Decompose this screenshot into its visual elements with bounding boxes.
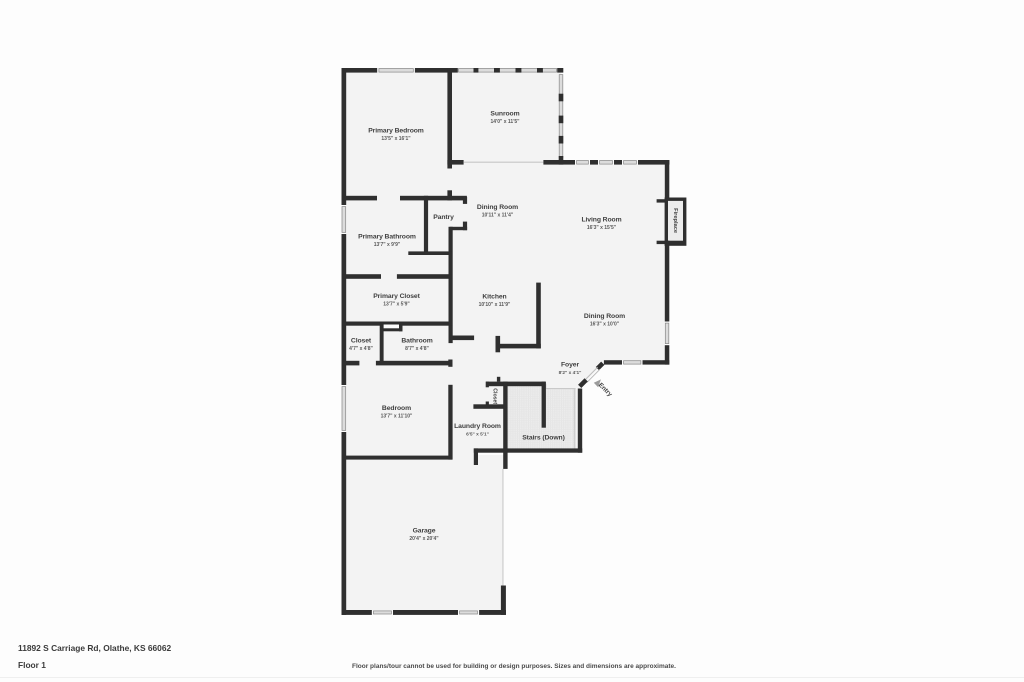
svg-text:Foyer: Foyer [561, 361, 579, 368]
svg-text:Dining Room: Dining Room [584, 313, 625, 320]
svg-text:10'11" x 11'4": 10'11" x 11'4" [482, 213, 514, 219]
svg-text:Bathroom: Bathroom [401, 337, 432, 344]
svg-text:6'5" x 5'1": 6'5" x 5'1" [466, 432, 489, 438]
svg-text:14'0" x 11'5": 14'0" x 11'5" [490, 119, 520, 125]
svg-text:Closet: Closet [351, 337, 372, 344]
svg-text:Stairs (Down): Stairs (Down) [522, 434, 565, 441]
svg-text:Living Room: Living Room [581, 216, 621, 223]
svg-text:Primary Closet: Primary Closet [373, 293, 420, 300]
svg-text:Pantry: Pantry [433, 214, 454, 221]
svg-text:Kitchen: Kitchen [482, 293, 506, 300]
svg-text:8'2" x 4'1": 8'2" x 4'1" [559, 370, 582, 376]
svg-text:8'7" x 4'8": 8'7" x 4'8" [405, 346, 429, 352]
svg-text:16'3" x 10'0": 16'3" x 10'0" [590, 322, 620, 328]
svg-text:Primary Bathroom: Primary Bathroom [358, 233, 416, 240]
svg-text:Bedroom: Bedroom [382, 405, 411, 412]
svg-text:Entry: Entry [597, 382, 614, 399]
svg-text:13'7" x 9'9": 13'7" x 9'9" [374, 242, 401, 248]
svg-text:Dining Room: Dining Room [477, 204, 518, 211]
svg-text:Laundry Room: Laundry Room [454, 423, 501, 430]
svg-text:13'5" x 16'1": 13'5" x 16'1" [381, 136, 411, 142]
svg-text:13'7" x 11'10": 13'7" x 11'10" [381, 414, 413, 420]
svg-text:10'10" x 11'9": 10'10" x 11'9" [479, 302, 511, 308]
svg-text:13'7" x 5'9": 13'7" x 5'9" [383, 302, 410, 308]
svg-text:20'4" x 20'4": 20'4" x 20'4" [409, 536, 439, 542]
svg-text:Fireplace: Fireplace [672, 208, 678, 233]
svg-text:Primary Bedroom: Primary Bedroom [368, 127, 424, 134]
svg-text:Garage: Garage [413, 527, 436, 534]
svg-text:Closet: Closet [491, 388, 497, 404]
svg-text:16'3" x 15'5": 16'3" x 15'5" [587, 225, 617, 231]
svg-text:4'7" x 4'8": 4'7" x 4'8" [349, 346, 373, 352]
svg-text:Sunroom: Sunroom [490, 110, 519, 117]
